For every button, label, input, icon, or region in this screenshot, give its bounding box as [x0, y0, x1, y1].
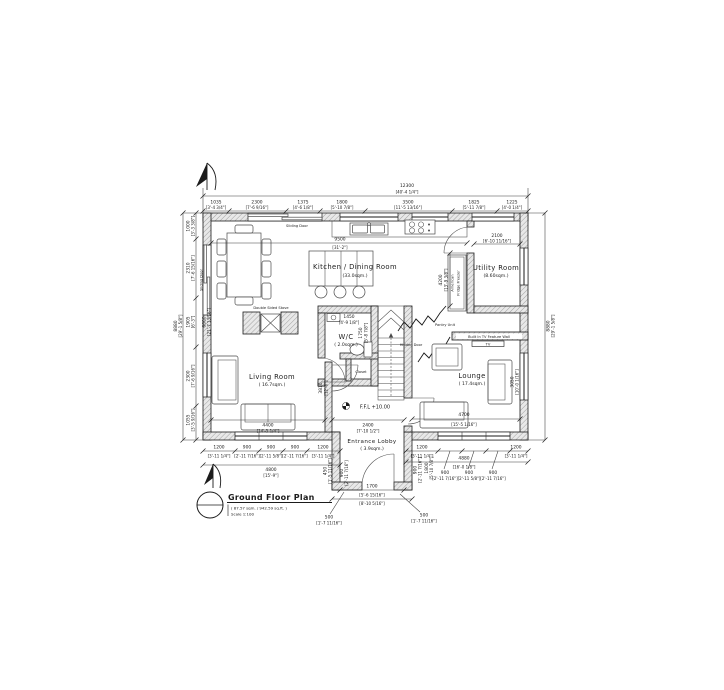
label-lounge-area: ( 17.4sqm.) — [459, 381, 486, 387]
drawing-scale: Scale 1:100 — [231, 512, 254, 517]
dim-kitchen-ft: [31'-2"] — [332, 245, 348, 250]
dim-bl-4-ft: [3'-11 1/4"] — [312, 454, 335, 459]
label-wc: W/C — [339, 333, 354, 341]
window-right-utility — [520, 248, 528, 285]
dim-bl-1-ft: [2'-11 7/16"] — [234, 454, 260, 459]
dim-top-2-ft: [4'-6 1/8"] — [293, 205, 314, 210]
dim-top-1-ft: [7'-6 9/16"] — [246, 205, 269, 210]
dim-living-ft: [14'-5 1/4"] — [257, 429, 280, 434]
label-kitchen-dining-area: (33.0sqm.) — [342, 273, 367, 279]
north-arrow-top — [196, 163, 216, 190]
label-fridge-1: American — [451, 274, 455, 291]
dim-top-6-ft: [4'-0 1/4"] — [502, 205, 523, 210]
entrance-door — [362, 454, 394, 486]
dim-br-1-ft: [2'-11 7/16"] — [432, 476, 458, 481]
dim-lobby-ft: [7'-10 1/2"] — [357, 429, 380, 434]
label-pantry-unit: Pantry Unit — [435, 323, 456, 327]
label-hidden-door: Hidden Door — [400, 343, 423, 347]
dim-bl-3-mm: 900 — [291, 445, 300, 451]
label-wc-area: ( 2.0sqm.) — [334, 342, 358, 348]
dim-wc-ft: [4'-9 1/8"] — [339, 320, 360, 325]
dim-bl-4-mm: 1200 — [317, 445, 328, 451]
dim-left-overall-ft: [29'-1 5/8"] — [178, 314, 183, 337]
label-lobby: Entrance Lobby — [347, 439, 397, 445]
dim-bl-2-ft: [2'-11 5/8"] — [260, 454, 283, 459]
dim-br-4-mm: 1200 — [510, 445, 521, 451]
dim-top-0-ft: [3'-4 3/4"] — [206, 205, 227, 210]
label-tv: TV — [485, 343, 491, 347]
dim-porch-la-ft: [1'-5 11/16"] — [328, 458, 333, 484]
dim-br-total-mm: 4880 — [458, 456, 469, 462]
dim-top-overall-mm: 12300 — [400, 183, 414, 189]
dim-br-4-ft: [3'-11 1/4"] — [505, 454, 528, 459]
utility-door — [444, 227, 470, 253]
hob — [405, 220, 435, 234]
label-utility-area: (8.60sqm.) — [483, 273, 508, 279]
dim-top-overall-ft: [40'-4 1/4"] — [396, 190, 419, 195]
dim-porch-lb-ft: [2'-11 7/16"] — [344, 460, 349, 486]
label-sliding-door-top: Sliding Door — [286, 224, 308, 228]
dim-lounge-ft: [15'-5 1/16"] — [451, 422, 477, 427]
dim-lounge-mm: 4700 — [458, 412, 469, 418]
window-top-1 — [340, 213, 398, 221]
sliding-door-left — [203, 245, 211, 315]
dim-left-3-ft: [7'-6 9/16"] — [191, 364, 196, 387]
dim-porch-ft: [5'-6 15/16"] — [359, 493, 385, 498]
label-lounge: Lounge — [458, 372, 485, 380]
stair-direction-arrow — [389, 333, 393, 338]
dim-left-4-ft: [3'-5 9/16"] — [191, 408, 196, 431]
double-sided-stove — [243, 312, 298, 334]
label-utility: Utility Room — [473, 264, 519, 272]
dim-bl-total-ft: [15'-9"] — [263, 473, 279, 478]
drawing-area: ( 87.57 sqm. / 942.59 sq.ft. ) — [231, 506, 287, 511]
floor-plan-drawing: Ground Floor Plan ( 87.57 sqm. / 942.59 … — [0, 0, 724, 690]
dim-porch-total-ft: [8'-10 5/16"] — [359, 501, 385, 506]
label-ffl: F.F.L +10.00 — [360, 405, 390, 411]
label-living-area: ( 16.7sqm.) — [259, 382, 286, 388]
dim-porch-mm: 1700 — [366, 484, 377, 490]
sliding-door-top — [248, 213, 322, 221]
dim-porch-ra-ft: [2'-11 7/16"] — [418, 457, 423, 483]
dim-bl-0-ft: [3'-11 1/4"] — [208, 454, 231, 459]
dim-kitchen-mm: 9500 — [334, 237, 345, 243]
dim-bl-1-mm: 900 — [243, 445, 252, 451]
dim-br-total-ft: [16'-0 1/8"] — [453, 465, 476, 470]
title-block: Ground Floor Plan ( 87.57 sqm. / 942.59 … — [197, 492, 332, 518]
dim-top-4-ft: [11'-5 13/16"] — [394, 205, 422, 210]
dim-left-1-ft: [7'-6 15/16"] — [191, 255, 196, 281]
label-kitchen-dining: Kitchen / Dining Room — [313, 263, 397, 271]
dim-leader-right-ft: [1'-7 11/16"] — [411, 519, 437, 524]
window-right-lounge — [520, 353, 528, 400]
ffl-level-marker — [342, 402, 349, 409]
living-room-sofas — [212, 356, 295, 430]
dim-leader-left-ft: [1'-7 11/16"] — [316, 521, 342, 526]
sink — [350, 223, 388, 235]
dim-top-5-ft: [5'-11 7/8"] — [463, 205, 486, 210]
label-living: Living Room — [249, 373, 295, 381]
dim-br-0-mm: 1200 — [416, 445, 427, 451]
dim-utility-ft: [6'-10 11/16"] — [483, 239, 511, 244]
staircase — [378, 306, 404, 400]
dim-br-3-ft: [2'-11 7/16"] — [480, 476, 506, 481]
dim-porch-rb-ft: [5'-10 7/8"] — [429, 456, 434, 479]
window-top-3 — [472, 213, 514, 221]
dim-living-h-ft: [12'-6"] — [324, 380, 329, 396]
dining-table — [217, 225, 271, 305]
label-fridge-2: Fridge Freezer — [457, 270, 461, 296]
window-left — [203, 353, 211, 397]
label-tv-feature-wall: Built In TV Feature Wall — [468, 335, 510, 339]
label-sliding-door-left: Sliding Door — [200, 269, 204, 291]
dim-br-2-ft: [2'-11 5/8"] — [458, 476, 481, 481]
dim-left-2-ft: [6'-3"] — [191, 315, 196, 328]
dim-right-overall-ft: [29'-1 5/8"] — [551, 314, 556, 337]
dim-wc-h-ft: [5'-8 7/8"] — [364, 322, 369, 343]
north-arrow-bottom — [204, 464, 221, 488]
dim-left-inner-ft: [21'-7 13/16"] — [207, 308, 212, 336]
label-closet: Closet — [355, 370, 367, 374]
label-lobby-area: ( 3.9sqm.) — [360, 446, 384, 452]
dim-utility-h-ft: [13'-9 3/8"] — [444, 268, 449, 291]
label-double-sided-stove: Double Sided Stove — [253, 306, 289, 310]
dim-left-0-ft: [3'-3 3/8"] — [191, 215, 196, 236]
window-bottom-right — [438, 432, 510, 440]
dim-bl-3-ft: [2'-11 7/16"] — [282, 454, 308, 459]
dim-bl-0-mm: 1200 — [213, 445, 224, 451]
dim-top-3-ft: [5'-10 7/8"] — [331, 205, 354, 210]
drawing-title: Ground Floor Plan — [228, 493, 315, 502]
kitchen-counter — [332, 220, 467, 237]
dim-lounge-h-ft: [10'-0 1/16"] — [515, 369, 520, 395]
dim-bl-2-mm: 900 — [267, 445, 276, 451]
